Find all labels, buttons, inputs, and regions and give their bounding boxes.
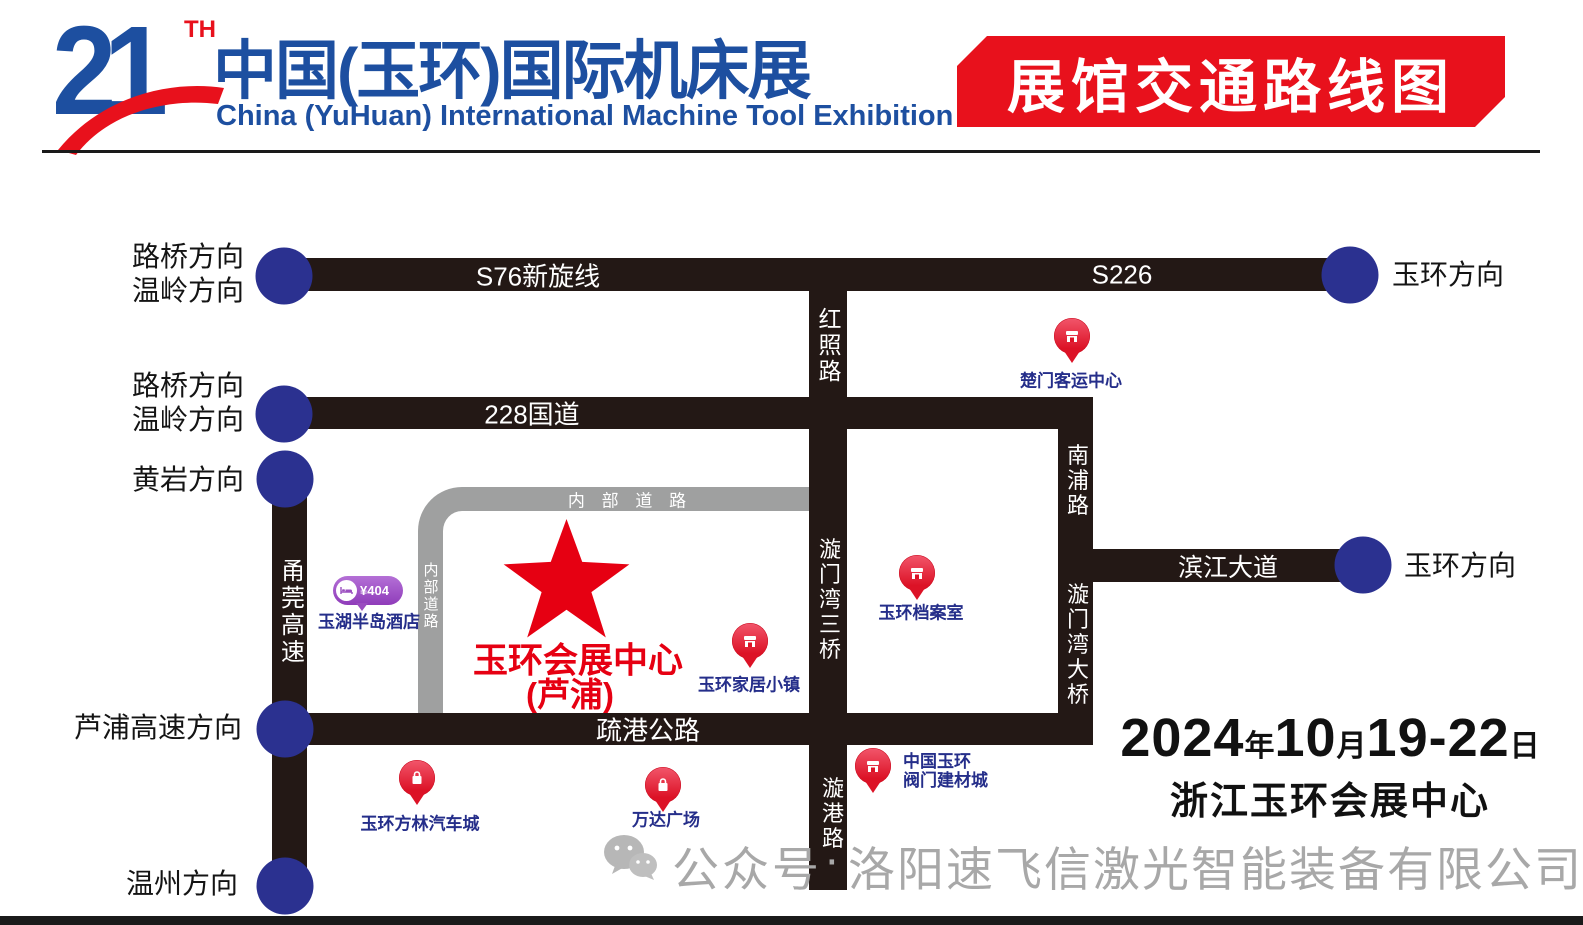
road-label-nanpu: 南浦路 [1060,444,1092,519]
home-store-icon [732,623,768,659]
poi-label-valve-building-materials-city: 中国玉环阀门建材城 [903,752,988,790]
road-label-yongguan: 甬莞高速 [273,558,308,666]
poi-pin-chumen-bus-station [1054,318,1090,363]
bus-station-icon [1054,318,1090,354]
shopping-bag-icon [399,760,435,796]
wechat-icon [602,832,658,882]
logo-edition-suffix: TH [184,16,216,44]
watermark-company: 洛阳速飞信激光智能装备有限公司 [848,831,1583,900]
poi-label-wanda-plaza: 万达广场 [632,806,700,831]
venue-name-sub: (芦浦) [526,668,614,716]
road-label-shugang: 疏港公路 [596,711,700,748]
road-label-internal-h: 内 部 道 路 [568,487,692,512]
archive-icon [899,555,935,591]
poi-label-chumen-bus-station: 楚门客运中心 [1020,367,1122,392]
road-label-g228: 228国道 [484,395,579,432]
direction-label-luqiao-top: 路桥方向温岭方向 [132,240,244,308]
endpoint-node-luqiao-top [256,248,313,305]
road-label-internal-v: 内部道路 [420,562,441,630]
direction-label-wenzhou: 温州方向 [126,867,238,901]
endpoint-node-yuhuan-right [1335,537,1392,594]
traffic-route-map-poster: 21 TH 中国(玉环)国际机床展 China (YuHuan) Interna… [0,0,1583,925]
bed-icon [336,580,357,601]
hotel-price: ¥404 [360,583,389,598]
poi-label-yuhuan-archive: 玉环档案室 [879,599,964,624]
endpoint-node-lupu [257,701,314,758]
market-icon [855,748,891,784]
road-g228 [284,397,1093,429]
logo-swoosh [52,76,232,156]
bottom-border [0,916,1583,925]
road-label-s76: S76新旋线 [476,257,600,294]
direction-label-luqiao-mid: 路桥方向温岭方向 [132,369,244,437]
route-map-banner: 展馆交通路线图 [957,36,1505,127]
event-date: 2024年10月19-22日 [1100,707,1560,769]
direction-label-huangyan: 黄岩方向 [132,463,244,497]
road-label-s226: S226 [1092,260,1153,291]
endpoint-node-luqiao-mid [256,386,313,443]
road-label-xuanmenwan-bridge: 漩门湾大桥 [1060,583,1092,708]
exhibition-title-chinese: 中国(玉环)国际机床展 [213,20,958,112]
poi-label-fanglin-auto-city: 玉环方林汽车城 [361,810,480,835]
hotel-price-badge: ¥404 [333,576,403,605]
watermark-prefix: 公众号 [672,831,822,900]
shopping-bag-icon [645,767,681,803]
poi-pin-home-furnishing-town [732,623,768,668]
poi-pin-fanglin-auto-city [399,760,435,805]
endpoint-node-yuhuan-top [1322,247,1379,304]
route-map-banner-text: 展馆交通路线图 [1007,40,1455,124]
direction-label-lupu: 芦浦高速方向 [74,711,242,745]
header-rule [42,150,1540,153]
direction-label-yuhuan-top: 玉环方向 [1392,258,1504,292]
watermark-separator: · [824,831,840,886]
event-venue: 浙江玉环会展中心 [1100,770,1560,825]
road-label-xuanmenwan-3rd: 漩门湾三桥 [812,538,844,663]
hotel-label: 玉湖半岛酒店 [318,608,420,633]
road-label-binjiang: 滨江大道 [1178,548,1278,584]
poi-pin-valve-building-materials-city [855,748,891,793]
exhibition-title-english: China (YuHuan) International Machine Too… [216,100,961,133]
poi-label-home-furnishing-town: 玉环家居小镇 [698,671,800,696]
road-label-hongzhao: 红照路 [811,307,845,385]
direction-label-yuhuan-right: 玉环方向 [1404,549,1516,583]
endpoint-node-huangyan [257,451,314,508]
endpoint-node-wenzhou [257,858,314,915]
road-yongguan [272,479,307,886]
poi-pin-yuhuan-archive [899,555,935,600]
